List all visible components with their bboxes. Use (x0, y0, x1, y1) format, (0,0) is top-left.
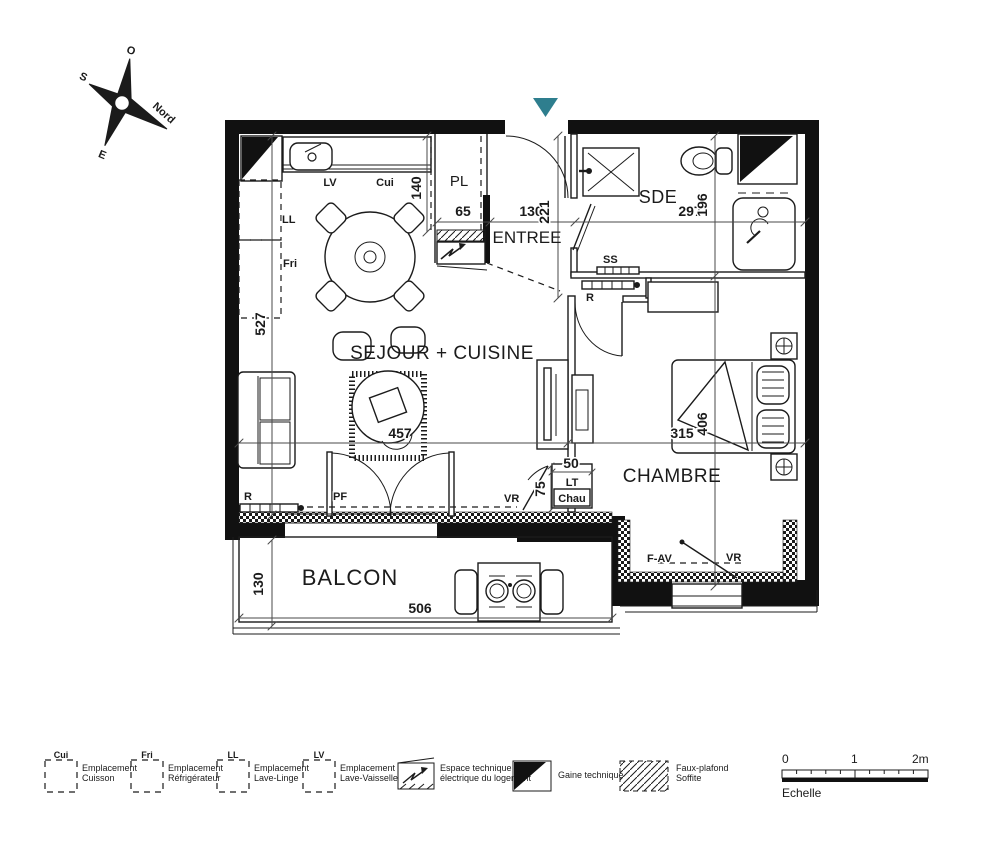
legend-label: Cuisson (82, 773, 115, 783)
legend-label: Réfrigérateur (168, 773, 221, 783)
legend-item-faux-plafond: Faux-plafond Soffite (620, 761, 729, 791)
room-label-entree: ENTREE (493, 228, 562, 247)
legend-label: Emplacement (254, 763, 310, 773)
legend-label: Soffite (676, 773, 701, 783)
room-label-pl: PL (450, 173, 468, 190)
legend-label: Emplacement (82, 763, 138, 773)
legend-label: Lave-Vaisselle (340, 773, 398, 783)
legend-item-lave-vaisselle: LV Emplacement Lave-Vaisselle (303, 750, 398, 792)
room-label-sejour: SEJOUR + CUISINE (350, 343, 534, 364)
legend-item-lave-linge: LL Emplacement Lave-Linge (217, 750, 310, 792)
tv-unit (537, 360, 568, 449)
fridge-tag: Fri (283, 258, 297, 270)
kitchen-sink (290, 143, 332, 170)
dim-sde-depth: 196 (694, 193, 710, 217)
legend-code-ll: LL (228, 750, 239, 760)
ss-tag: SS (603, 254, 618, 266)
legend-item-espace-technique: Espace technique électrique du logement (398, 758, 532, 789)
legend-item-refrigerateur: Fri Emplacement Réfrigérateur (131, 750, 224, 792)
scale-tick-2: 2m (912, 752, 929, 766)
cooktop-tag: Cui (376, 177, 394, 189)
legend-code-lv: LV (314, 750, 325, 760)
scale-tick-0: 0 (782, 752, 789, 766)
desk (572, 375, 593, 443)
dim-chambre-depth: 406 (694, 412, 710, 436)
vr-chambre-tag: VR (726, 552, 741, 564)
legend-item-cuisson: Cui Emplacement Cuisson (45, 750, 138, 792)
dim-sejour-width: 457 (388, 425, 412, 441)
pf-tag: PF (333, 491, 347, 503)
compass-west-label: O (125, 44, 137, 58)
dim-balcon-depth: 130 (250, 572, 266, 596)
lt-tag: LT (566, 477, 579, 489)
shower (733, 193, 795, 270)
legend-label: Emplacement (340, 763, 396, 773)
chambre-furniture (572, 282, 797, 480)
scale-bar: 0 1 2m Echelle (782, 752, 929, 800)
compass-rose: O S E Nord (77, 44, 177, 162)
compass-south-label: S (77, 70, 89, 84)
r-hall-tag: R (586, 292, 594, 304)
towel-dryer (597, 267, 639, 274)
espace-technique-box (437, 242, 487, 270)
legend-label: Faux-plafond (676, 763, 729, 773)
dim-kitchen-depth: 140 (408, 176, 424, 200)
balcony-chair-right (541, 570, 563, 614)
entrance-marker-icon (533, 98, 558, 117)
compass-center (114, 95, 130, 111)
nightstand-bottom (771, 454, 797, 480)
dim-entree-depth: 221 (536, 200, 552, 224)
dim-pl-width: 65 (455, 203, 471, 219)
vr-sejour-tag: VR (504, 493, 519, 505)
floor-plan-page: O S E Nord (0, 0, 1000, 857)
room-label-chambre: CHAMBRE (623, 466, 722, 487)
scale-caption: Echelle (782, 786, 822, 800)
sofa (238, 372, 295, 468)
room-label-balcon: BALCON (302, 565, 398, 590)
dim-closet-width: 50 (563, 455, 579, 471)
legend-label: Espace technique (440, 763, 512, 773)
dresser (648, 282, 718, 312)
balcony-chair-left (455, 570, 477, 614)
legend-code-fri: Fri (141, 750, 153, 760)
fridge-emplacement (239, 240, 281, 318)
dim-chambre-width: 315 (670, 425, 694, 441)
toilet (681, 147, 732, 175)
legend-code-cui: Cui (54, 750, 69, 760)
dim-closet-depth: 75 (532, 481, 548, 497)
legend-label: Emplacement (168, 763, 224, 773)
radiator-hall (582, 281, 640, 289)
legend: Cui Emplacement Cuisson Fri Emplacement … (45, 750, 929, 800)
compass-east-label: E (96, 148, 107, 162)
dim-balcon-width: 506 (408, 600, 432, 616)
fav-tag: F-AV (647, 553, 673, 565)
nightstand-top (771, 333, 797, 359)
dim-sejour-height: 527 (252, 312, 268, 336)
washer-tag: LL (282, 214, 296, 226)
washer-emplacement (239, 180, 281, 240)
legend-label: Gaine technique (558, 770, 624, 780)
dishwasher-tag: LV (323, 177, 337, 189)
room-label-sde: SDE (639, 187, 678, 207)
chau-tag: Chau (558, 493, 586, 505)
legend-label: Lave-Linge (254, 773, 299, 783)
r-sejour-tag: R (244, 491, 252, 503)
legend-item-gaine-technique: Gaine technique (513, 761, 624, 791)
scale-tick-1: 1 (851, 752, 858, 766)
